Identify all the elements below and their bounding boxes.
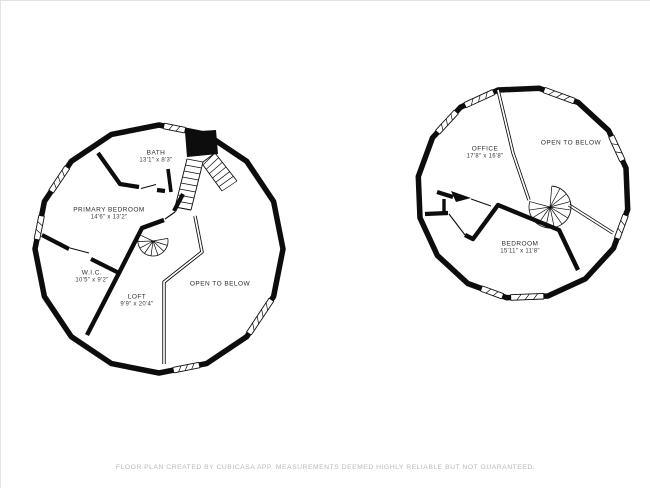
room-dimensions: 9'9" x 20'4" [120,302,153,310]
right-plan [418,87,628,300]
room-label-open-to-below-left: OPEN TO BELOW [190,279,250,288]
room-name: W.I.C. [75,269,108,278]
room-name: BATH [139,149,172,158]
room-name: LOFT [120,293,153,302]
room-name: OPEN TO BELOW [190,279,250,288]
floor-plan-drawing [1,1,650,488]
floor-plan-page: BATH 13'1" x 8'3" PRIMARY BEDROOM 14'6" … [0,0,650,488]
room-label-primary-bedroom: PRIMARY BEDROOM 14'6" x 13'2" [73,206,145,223]
disclaimer-text: FLOOR PLAN CREATED BY CUBICASA APP. MEAS… [1,464,650,471]
room-label-bedroom: BEDROOM 15'11" x 11'8" [500,240,540,257]
room-name: OPEN TO BELOW [541,138,601,147]
room-dimensions: 17'8" x 16'8" [467,154,504,162]
room-label-office: OFFICE 17'8" x 16'8" [467,145,504,162]
room-label-wic: W.I.C. 10'5" x 9'2" [75,269,108,286]
room-dimensions: 10'5" x 9'2" [75,278,108,286]
room-label-loft: LOFT 9'9" x 20'4" [120,293,153,310]
room-dimensions: 15'11" x 11'8" [500,249,540,257]
room-dimensions: 13'1" x 8'3" [139,158,172,166]
room-dimensions: 14'6" x 13'2" [73,215,145,223]
room-name: PRIMARY BEDROOM [73,206,145,215]
room-label-bath: BATH 13'1" x 8'3" [139,149,172,166]
room-name: OFFICE [467,145,504,154]
room-label-open-to-below-right: OPEN TO BELOW [541,138,601,147]
room-name: BEDROOM [500,240,540,249]
